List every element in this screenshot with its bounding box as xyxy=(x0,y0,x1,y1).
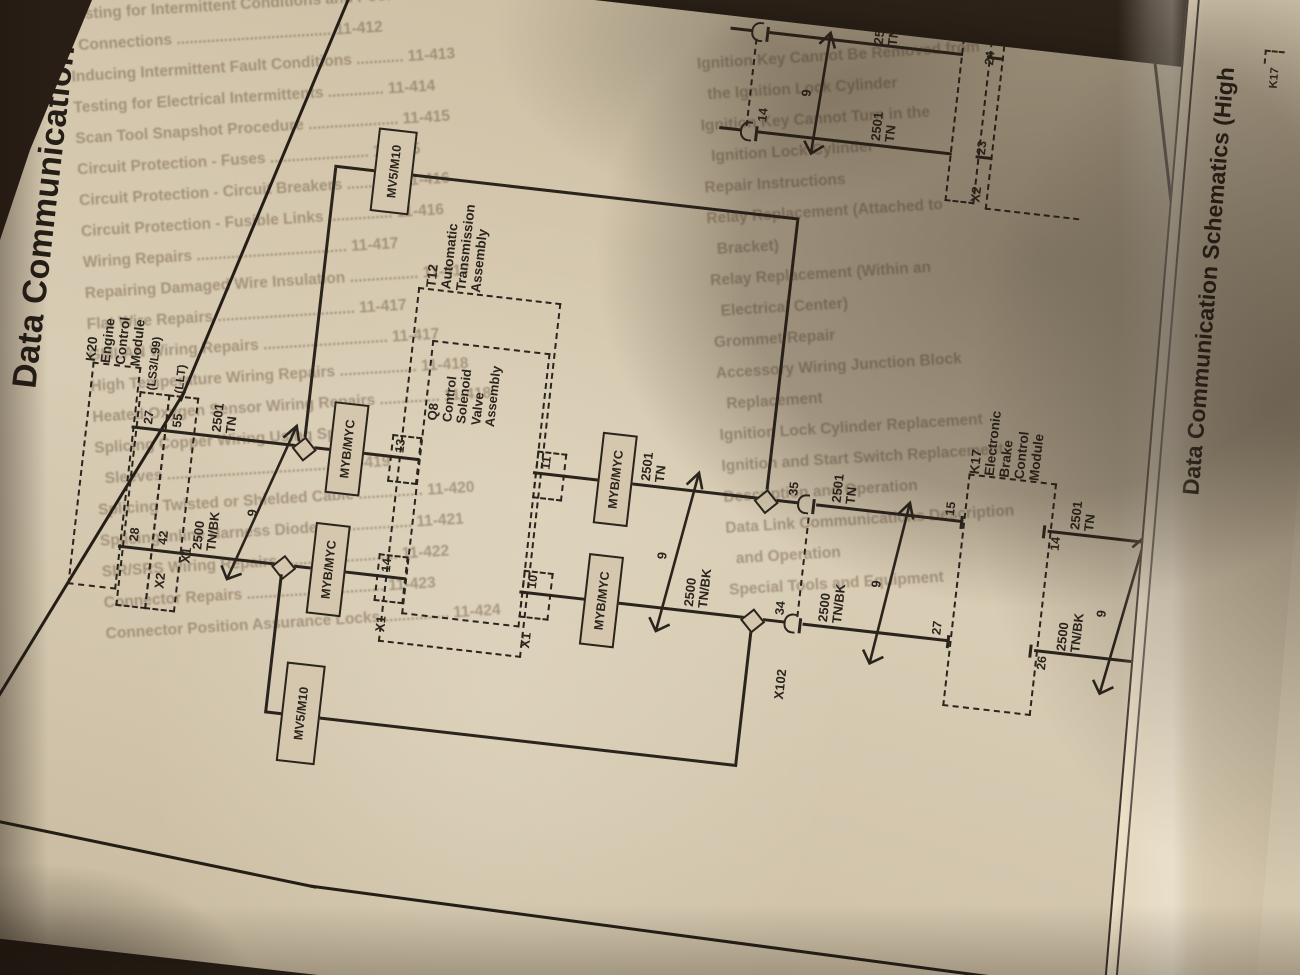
k17-pin-14: 14 xyxy=(1048,536,1063,551)
twist-count-label: 9 xyxy=(799,89,814,98)
x102-connector-male xyxy=(798,618,803,633)
x102-pin-34: 34 xyxy=(773,600,788,615)
tr-pin-14: 14 xyxy=(755,107,770,122)
next-page-dashed-fragment xyxy=(1264,50,1285,66)
tr-pin-24: 24 xyxy=(982,51,997,66)
schematic-artwork: Testing for a Short to Voltage .........… xyxy=(0,0,1300,975)
wire-color: TN/BK xyxy=(830,583,848,624)
q8-connector-x1: X1 xyxy=(518,632,534,649)
bypass-branch-line xyxy=(264,710,737,767)
k17-pin-27: 27 xyxy=(929,620,944,635)
wire-2500-label: 2500 TN/BK xyxy=(816,582,848,625)
k20-connector-x2-label: X2 xyxy=(153,572,169,589)
wire-2500-label: 2500 TN/BK xyxy=(190,509,222,552)
frame-left-edge xyxy=(0,806,316,888)
wire-2501-label: 2501 TN xyxy=(869,111,900,143)
tr-module-left-edge xyxy=(985,208,1080,221)
wire-2500-segment xyxy=(763,618,785,623)
q8-pin-13: 13 xyxy=(392,438,407,453)
k20-pin-42: 42 xyxy=(155,530,170,545)
inline-connector-male xyxy=(765,27,770,42)
myb-myc-label: MYB/MYC xyxy=(337,419,358,479)
k20-pin-28: 28 xyxy=(127,527,142,542)
twist-count-label: 9 xyxy=(245,509,260,518)
photo-scene: Testing for a Short to Voltage .........… xyxy=(0,0,1300,975)
q8-label: Q8 Control Solenoid Valve Assembly xyxy=(425,359,504,428)
k20-pin-27: 27 xyxy=(141,410,156,425)
x102-connector-female xyxy=(783,613,797,634)
splice-diamond xyxy=(740,608,765,633)
mv5-m10-label: MV5/M10 xyxy=(291,686,311,741)
twist-count-label: 9 xyxy=(1094,609,1109,618)
frame-left-edge xyxy=(311,885,1196,975)
twist-count-label: 9 xyxy=(869,580,884,589)
wire-2500-label: 2500 TN/BK xyxy=(1054,611,1086,654)
next-page-title: Data Communication Schematics (High xyxy=(1177,0,1249,496)
wire-color: TN/BK xyxy=(1068,612,1086,653)
q8-connector-x1: X1 xyxy=(373,615,389,632)
wire-2500-label: 2500 TN/BK xyxy=(872,4,904,47)
book-page: Testing for a Short to Voltage .........… xyxy=(0,0,1300,975)
myb-myc-label: MYB/MYC xyxy=(318,539,339,599)
k20-pin-55: 55 xyxy=(170,413,185,428)
x102-pin-35: 35 xyxy=(786,481,801,496)
q8-pin-14: 14 xyxy=(379,557,394,572)
x102-label: X102 xyxy=(772,668,789,700)
myb-myc-label: MYB/MYC xyxy=(605,449,626,509)
q8-pin-10: 10 xyxy=(525,574,540,589)
mv5-m10-box: MV5/M10 xyxy=(276,661,326,765)
twist-count-label: 9 xyxy=(655,551,670,560)
myb-myc-box: MYB/MYC xyxy=(579,553,624,648)
bypass-branch-line xyxy=(734,628,753,765)
myb-myc-box: MYB/MYC xyxy=(593,432,638,527)
k20-module-label: K20 Engine Control Module xyxy=(83,313,148,367)
t12-label: T12 Automatic Transmission Assembly xyxy=(423,200,492,293)
tr-x2-label: X2 xyxy=(968,186,984,203)
next-page-k17-fragment: K17 xyxy=(1268,67,1282,89)
k17-pin-15: 15 xyxy=(943,501,958,516)
q8-pin-11: 11 xyxy=(538,456,553,471)
wire-2500-segment xyxy=(730,27,752,32)
wire-2501-label: 2501 TN xyxy=(830,473,861,505)
myb-myc-label: MYB/MYC xyxy=(591,571,612,631)
k17-pin-26: 26 xyxy=(1034,655,1049,670)
mv5-m10-label: MV5/M10 xyxy=(384,144,404,199)
k17-module-label: K17 Electronic Brake Control Module xyxy=(967,408,1049,481)
wire-2501-label: 2501 TN xyxy=(1068,500,1099,532)
tr-pin-23: 23 xyxy=(974,140,989,155)
